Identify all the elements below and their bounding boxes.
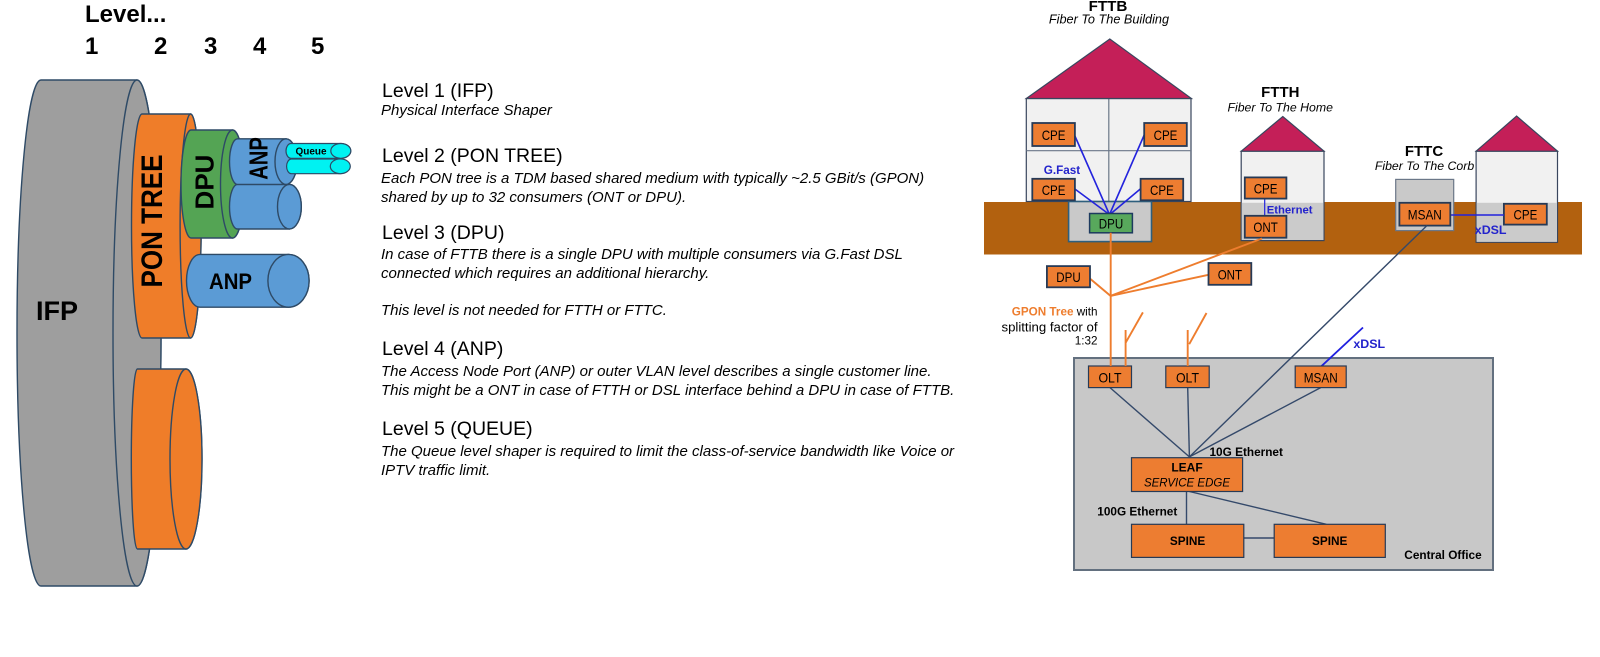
svg-text:CPE: CPE bbox=[1154, 127, 1178, 143]
svg-text:The Queue level shaper is requ: The Queue level shaper is required to li… bbox=[381, 443, 955, 460]
svg-text:xDSL: xDSL bbox=[1475, 223, 1507, 237]
svg-text:1: 1 bbox=[85, 33, 98, 60]
svg-text:FTTH: FTTH bbox=[1261, 84, 1299, 101]
svg-text:5: 5 bbox=[311, 33, 324, 60]
svg-text:Level 4 (ANP): Level 4 (ANP) bbox=[382, 338, 503, 360]
svg-text:SERVICE EDGE: SERVICE EDGE bbox=[1144, 478, 1230, 490]
svg-text:The Access Node Port (ANP) or: The Access Node Port (ANP) or outer VLAN… bbox=[381, 363, 932, 380]
svg-text:MSAN: MSAN bbox=[1304, 369, 1338, 385]
svg-text:MSAN: MSAN bbox=[1408, 207, 1442, 223]
svg-text:Level 2 (PON TREE): Level 2 (PON TREE) bbox=[382, 145, 563, 167]
svg-text:FTTC: FTTC bbox=[1405, 143, 1443, 160]
svg-text:Level...: Level... bbox=[85, 1, 166, 28]
svg-text:IFP: IFP bbox=[36, 296, 78, 326]
svg-text:In case of FTTB there is a sin: In case of FTTB there is a single DPU wi… bbox=[381, 246, 903, 263]
svg-text:10G Ethernet: 10G Ethernet bbox=[1210, 445, 1283, 459]
svg-text:IPTV traffic limit.: IPTV traffic limit. bbox=[381, 462, 490, 479]
svg-text:CPE: CPE bbox=[1254, 181, 1278, 197]
svg-text:1:32: 1:32 bbox=[1075, 334, 1098, 347]
svg-text:CPE: CPE bbox=[1150, 182, 1174, 198]
svg-text:Fiber To The Corb: Fiber To The Corb bbox=[1375, 159, 1474, 173]
svg-text:Level 1 (IFP): Level 1 (IFP) bbox=[382, 80, 494, 102]
svg-text:100G Ethernet: 100G Ethernet bbox=[1097, 505, 1177, 519]
svg-text:4: 4 bbox=[253, 33, 267, 60]
svg-text:G.Fast: G.Fast bbox=[1044, 164, 1080, 177]
svg-text:Physical Interface Shaper: Physical Interface Shaper bbox=[381, 102, 553, 119]
svg-text:CPE: CPE bbox=[1514, 207, 1538, 223]
svg-text:ONT: ONT bbox=[1253, 219, 1278, 235]
svg-text:PON TREE: PON TREE bbox=[136, 155, 169, 288]
svg-text:GPON Tree with: GPON Tree with bbox=[1012, 306, 1098, 319]
svg-text:CPE: CPE bbox=[1042, 182, 1066, 198]
svg-text:Fiber To The Home: Fiber To The Home bbox=[1227, 101, 1333, 115]
svg-text:SPINE: SPINE bbox=[1312, 534, 1348, 548]
svg-text:CPE: CPE bbox=[1042, 127, 1066, 143]
svg-text:Fiber To The Building: Fiber To The Building bbox=[1049, 12, 1169, 26]
svg-text:Ethernet: Ethernet bbox=[1267, 204, 1313, 216]
svg-text:ONT: ONT bbox=[1218, 266, 1243, 282]
svg-text:OLT: OLT bbox=[1098, 369, 1121, 385]
svg-text:connected which requires an ad: connected which requires an additional h… bbox=[381, 265, 709, 282]
svg-text:Level 5 (QUEUE): Level 5 (QUEUE) bbox=[382, 418, 533, 440]
svg-text:splitting factor of: splitting factor of bbox=[1001, 320, 1097, 335]
svg-text:3: 3 bbox=[204, 33, 217, 60]
svg-text:DPU: DPU bbox=[190, 155, 220, 210]
svg-text:This level is not needed for F: This level is not needed for FTTH or FTT… bbox=[381, 302, 667, 319]
svg-text:Level 3 (DPU): Level 3 (DPU) bbox=[382, 222, 504, 244]
svg-text:Central Office: Central Office bbox=[1404, 548, 1482, 562]
svg-text:OLT: OLT bbox=[1176, 369, 1199, 385]
svg-text:Queue: Queue bbox=[296, 145, 327, 157]
svg-text:shared by up to 32 consumers (: shared by up to 32 consumers (ONT or DPU… bbox=[381, 189, 686, 206]
svg-text:xDSL: xDSL bbox=[1353, 337, 1385, 351]
svg-text:ANP: ANP bbox=[209, 269, 252, 294]
svg-text:2: 2 bbox=[154, 33, 167, 60]
svg-text:Each PON tree is a TDM based s: Each PON tree is a TDM based shared medi… bbox=[381, 170, 924, 187]
svg-text:ANP: ANP bbox=[244, 137, 274, 180]
svg-text:This might be a ONT in case of: This might be a ONT in case of FTTH or D… bbox=[381, 382, 954, 399]
svg-text:DPU: DPU bbox=[1099, 216, 1123, 232]
svg-text:SPINE: SPINE bbox=[1170, 534, 1206, 548]
svg-text:DPU: DPU bbox=[1056, 269, 1080, 285]
svg-text:LEAF: LEAF bbox=[1171, 460, 1202, 474]
